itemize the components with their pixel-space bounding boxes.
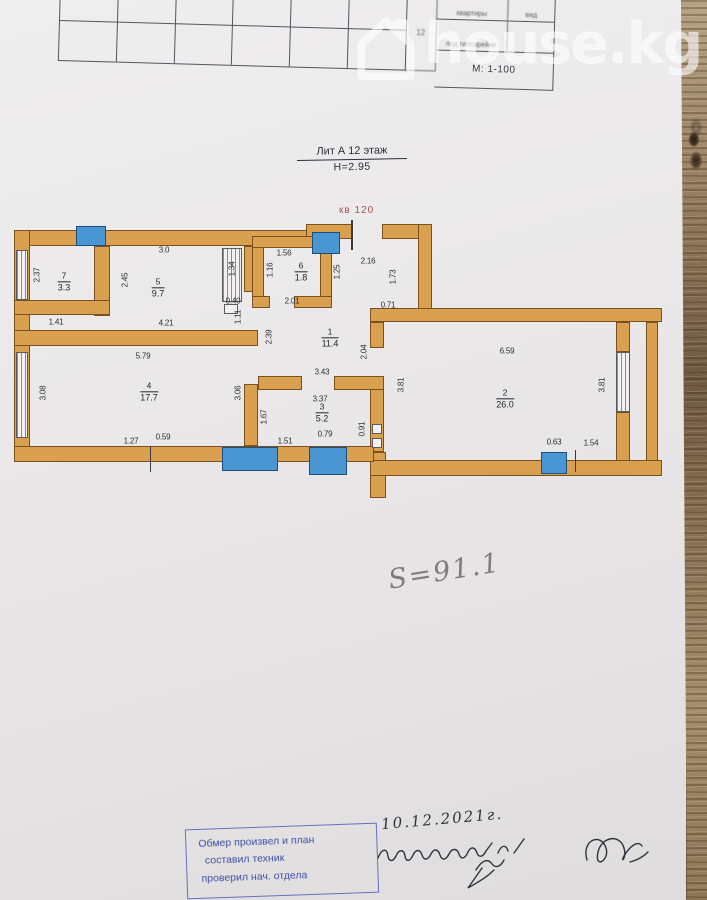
dim-label: 1.34: [228, 262, 237, 277]
ceiling-height-label: Н=2.95: [297, 159, 407, 174]
col-vid-label: вид: [508, 0, 555, 22]
wall: [370, 460, 662, 476]
room-label: 2 26.0: [496, 388, 514, 409]
dim-label: 0.40: [226, 297, 241, 306]
title-block-grid: [58, 0, 408, 71]
room-label: 1 11.4: [322, 327, 339, 348]
entry-door-mark: [351, 220, 353, 250]
dim-label: 1.51: [278, 437, 293, 446]
window-hatch: [16, 250, 28, 300]
dim-tick: [150, 446, 151, 472]
room-label: 5 9.7: [152, 277, 165, 298]
dim-label: 1.11: [234, 310, 243, 324]
wall: [244, 384, 258, 446]
dim-label: 1.41: [49, 318, 64, 327]
handwritten-signature: [372, 824, 672, 896]
window-blue: [309, 447, 347, 475]
dim-label: 0.91: [358, 422, 367, 437]
wall: [14, 330, 258, 346]
dim-label: 1.73: [389, 270, 398, 285]
window-blue: [312, 232, 340, 254]
dim-label: 0.79: [318, 430, 333, 439]
floor-plan-photo: { "watermark": { "text": "house.kg" }, "…: [0, 0, 707, 900]
dim-label: 1.25: [333, 265, 342, 280]
dim-label: 1.27: [124, 437, 139, 446]
window-blue: [76, 226, 106, 246]
dim-label: 2.01: [285, 297, 300, 306]
room-label: 3 5.2: [316, 402, 329, 423]
dim-label: 1.16: [266, 263, 275, 278]
dim-label: 3.06: [234, 386, 243, 401]
flat-number-label: кв 120: [339, 205, 374, 216]
title-block-cell-number: 12: [405, 0, 438, 72]
col-kvartiry-label: квартиры: [436, 0, 509, 21]
window-hatch: [616, 352, 630, 412]
room-label: 6 1.8: [295, 261, 308, 282]
wood-knot: [684, 108, 706, 178]
window-hatch: [16, 352, 28, 438]
vent-box: [372, 438, 382, 448]
wall: [616, 412, 630, 462]
wall: [370, 322, 384, 348]
dim-label: 1.54: [584, 439, 599, 448]
wall: [370, 308, 662, 322]
dim-label: 3.0: [159, 246, 170, 255]
room-label: 4 17.7: [140, 381, 158, 402]
dim-label: 3.43: [315, 368, 330, 377]
dim-label: 4.21: [159, 319, 174, 328]
room-label: 7 3.3: [58, 271, 71, 292]
dim-label: 0.59: [156, 433, 171, 442]
dim-label: 3.81: [397, 378, 406, 393]
row-pod-label: под гипсорейки: [435, 20, 508, 52]
wall: [616, 322, 630, 352]
wall: [334, 376, 384, 390]
dim-label: 2.45: [121, 273, 130, 288]
plan-title: Лит А 12 этаж Н=2.95: [297, 144, 407, 174]
window-blue: [222, 447, 278, 471]
dim-label: 0.63: [547, 438, 562, 447]
handwritten-total-area: S=91.1: [386, 547, 503, 595]
scale-label: М: 1-100: [434, 51, 553, 88]
dim-label: 6.59: [500, 347, 515, 356]
dim-label: 0.71: [381, 301, 396, 310]
document-sheet: 12 квартиры вид под гипсорейки М: 1-100 …: [0, 0, 686, 900]
wall: [14, 300, 110, 315]
title-block-table: 12 квартиры вид под гипсорейки М: 1-100: [57, 0, 555, 92]
wall: [258, 376, 302, 390]
dim-label: 3.08: [39, 386, 48, 401]
wall: [252, 296, 270, 308]
dim-label: 2.04: [360, 345, 369, 360]
window-blue: [541, 452, 567, 474]
dim-label: 1.67: [260, 410, 269, 425]
dim-label: 2.37: [33, 268, 42, 283]
dim-tick: [575, 450, 576, 472]
vent-box: [372, 424, 382, 434]
dim-label: 2.16: [361, 257, 376, 266]
wall: [294, 296, 332, 308]
dim-label: 2.39: [265, 330, 274, 345]
dim-label: 3.81: [598, 378, 607, 393]
dim-label: 5.79: [136, 352, 151, 361]
surveyor-stamp-box: Обмер произвел и план составил техник пр…: [185, 823, 379, 900]
dim-label: 1.56: [277, 249, 292, 258]
title-block-right: квартиры вид под гипсорейки М: 1-100: [434, 0, 556, 91]
wall: [646, 322, 658, 462]
